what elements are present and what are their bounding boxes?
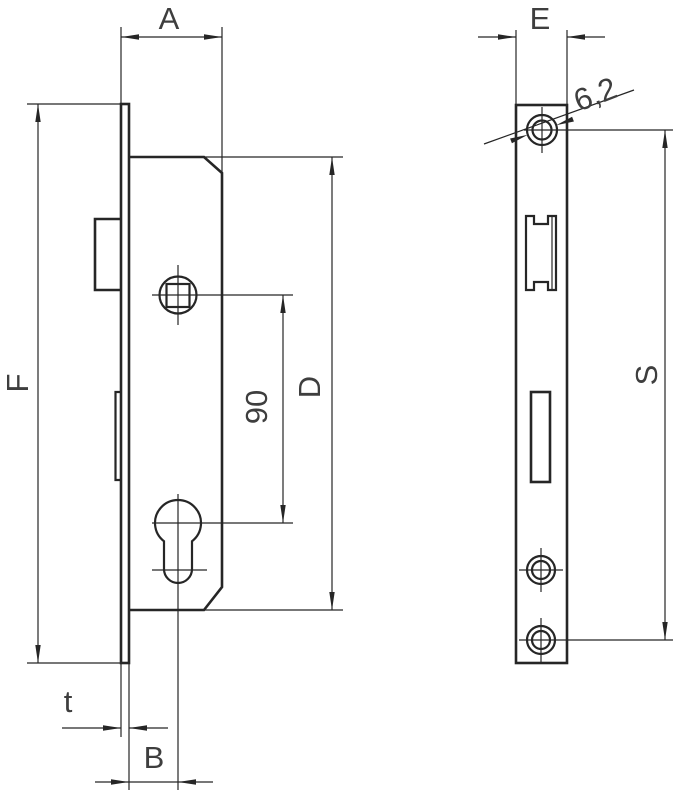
- arrow-icon: [567, 34, 585, 39]
- dim-label-b: B: [144, 740, 165, 775]
- arrow-icon: [204, 34, 222, 39]
- arrow-icon: [121, 34, 139, 39]
- dim-label-f: F: [0, 374, 35, 393]
- side-view-dimensions: [27, 27, 343, 790]
- arrow-icon: [280, 505, 285, 523]
- front-view-dimensions: [478, 30, 668, 640]
- arrow-icon: [103, 725, 121, 730]
- side-view-lock-case: [95, 104, 293, 790]
- arrow-icon: [556, 117, 574, 126]
- dim-label-a: A: [159, 1, 180, 36]
- arrow-icon: [662, 130, 667, 148]
- arrow-icon: [510, 135, 528, 144]
- arrow-icon: [129, 725, 147, 730]
- drawing-stage: A E F D 90 S t B 6,2: [0, 0, 675, 796]
- arrow-icon: [498, 34, 516, 39]
- latch-bolt-side: [95, 219, 121, 290]
- dim-label-d: D: [292, 376, 327, 398]
- arrow-icon: [662, 622, 667, 640]
- arrow-icon: [35, 104, 40, 122]
- dim-label-90: 90: [239, 390, 274, 424]
- arrow-icon: [329, 157, 334, 175]
- technical-drawing: A E F D 90 S t B 6,2: [0, 0, 675, 796]
- deadbolt-slot: [531, 392, 550, 482]
- arrow-icon: [329, 592, 334, 610]
- dim-label-e: E: [530, 1, 551, 36]
- arrow-icon: [280, 295, 285, 313]
- dim-label-s: S: [629, 365, 664, 386]
- arrow-icon: [178, 779, 196, 784]
- arrow-icon: [111, 779, 129, 784]
- dim-label-t: t: [64, 684, 73, 719]
- arrow-icon: [35, 645, 40, 663]
- lock-body-outline: [129, 157, 222, 610]
- faceplate-edge: [121, 104, 129, 663]
